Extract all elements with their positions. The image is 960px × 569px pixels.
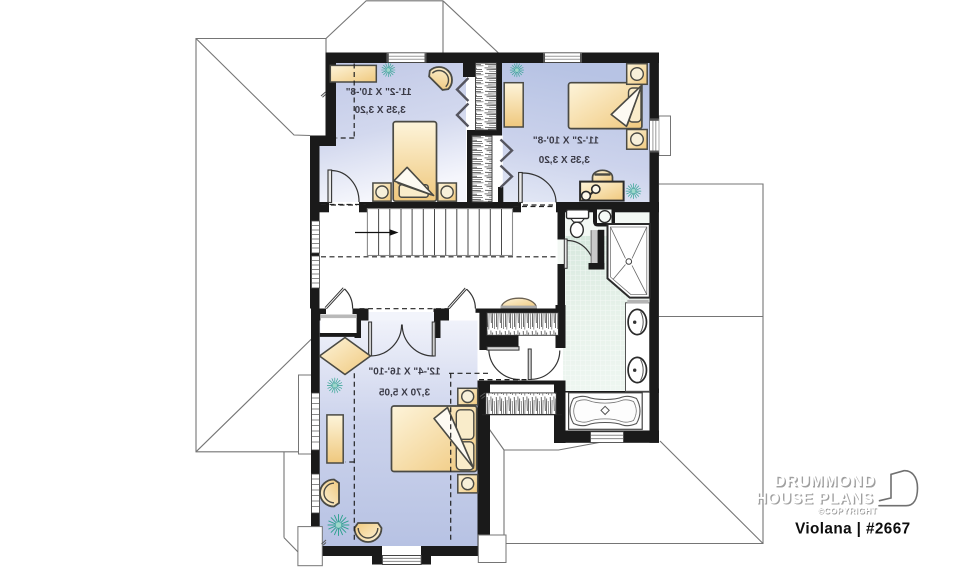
svg-text:3,35 X 3,20: 3,35 X 3,20 xyxy=(354,105,406,116)
svg-text:Violana | #2667: Violana | #2667 xyxy=(795,520,910,537)
svg-text:11'-2" X 10'-8": 11'-2" X 10'-8" xyxy=(345,87,411,98)
svg-text:DRUMMOND: DRUMMOND xyxy=(774,473,876,490)
svg-text:HOUSE PLANS: HOUSE PLANS xyxy=(756,490,874,507)
svg-text:3,35 X 3,20: 3,35 X 3,20 xyxy=(538,155,590,166)
svg-text:11'-2" X 10'-8": 11'-2" X 10'-8" xyxy=(533,135,599,146)
svg-text:3,70 X 5,05: 3,70 X 5,05 xyxy=(378,388,430,399)
svg-text:12'-4" X 16'-10": 12'-4" X 16'-10" xyxy=(368,366,440,377)
svg-text:©COPYRIGHT: ©COPYRIGHT xyxy=(818,507,877,516)
